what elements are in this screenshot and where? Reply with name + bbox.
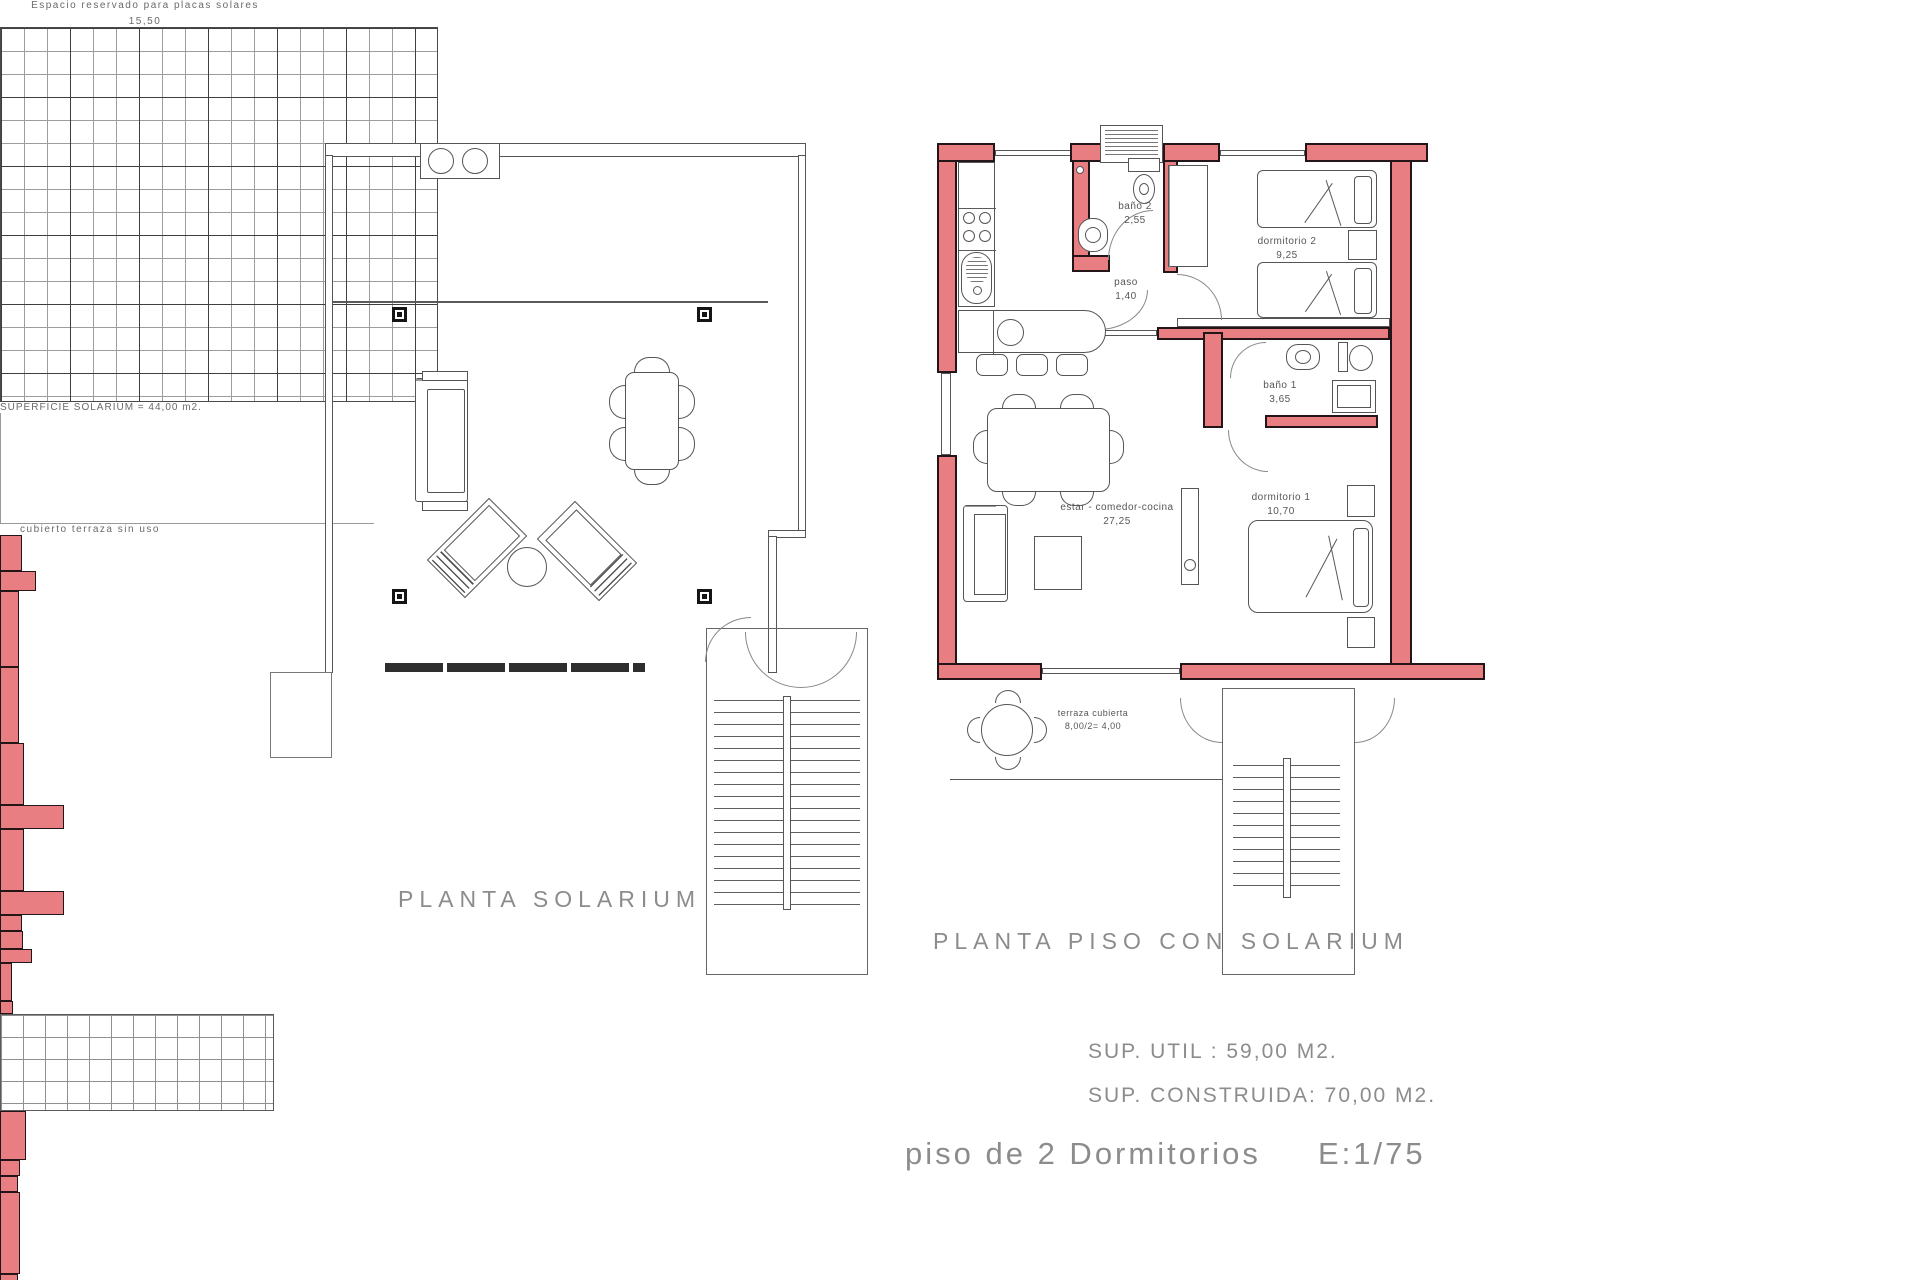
wall-bano1-cap	[0, 963, 12, 1001]
sup-util-text: SUP. UTIL : 59,00 M2.	[1088, 1040, 1338, 1064]
window-top-2	[1220, 150, 1305, 156]
sheet-fold	[1306, 539, 1338, 598]
red-wall	[0, 1274, 18, 1280]
plan-solarium-title: PLANTA SOLARIUM	[398, 886, 701, 913]
shower-tray	[1332, 380, 1376, 413]
window-left	[941, 373, 951, 455]
surface-label: SUPERFICIE SOLARIUM = 44,00 m2.	[0, 402, 200, 413]
red-wall	[0, 829, 24, 891]
toilet-cistern	[1128, 158, 1160, 172]
lounge-side-table	[507, 547, 547, 587]
stair-tower-right	[0, 1160, 1920, 1280]
toilet-cistern	[1338, 342, 1348, 372]
solarium-wall-top	[325, 143, 806, 157]
solarium-wall-left	[325, 155, 333, 673]
toilet-bowl	[1349, 345, 1373, 371]
terrace-left-line	[0, 413, 1, 523]
wall-dorm2-stub	[0, 949, 32, 963]
terrace-tile-grid	[0, 1014, 274, 1111]
solar-note-line1: Espacio reservado para placas solares	[0, 0, 290, 11]
terrace-step	[270, 672, 332, 758]
kitchen-peninsula	[958, 310, 1106, 353]
red-wall	[0, 591, 19, 667]
counter-line	[959, 208, 996, 209]
solarium-table	[625, 372, 679, 470]
chair	[609, 427, 625, 461]
sink-bowl	[1085, 227, 1101, 243]
chair	[609, 385, 625, 419]
red-wall	[0, 1111, 26, 1160]
solar-circle-1	[428, 148, 454, 174]
chair	[679, 385, 695, 419]
nightstand	[1347, 485, 1375, 517]
bar-stool	[1056, 354, 1088, 376]
stove-burner	[979, 212, 991, 224]
peninsula-hob	[997, 319, 1024, 346]
door-arc	[705, 617, 751, 662]
solarium-wall-right-outer	[798, 155, 806, 537]
room-name: baño 1	[1245, 379, 1315, 393]
room-name: baño 2	[1100, 200, 1170, 214]
floorplan-canvas: Espacio reservado para placas solares 15…	[0, 0, 1920, 1280]
solar-note: Espacio reservado para placas solares 15…	[0, 0, 290, 27]
column-red	[0, 1001, 13, 1014]
peninsula-line	[993, 311, 994, 354]
room-area: 8,00/2= 4,00	[1043, 720, 1143, 733]
sofa-armrest	[422, 371, 468, 381]
room-area: 1,40	[1096, 290, 1156, 304]
wall-right	[1390, 160, 1412, 667]
room-name: terraza cubierta	[1043, 707, 1143, 720]
nightstand	[1347, 617, 1375, 648]
wall-left-lower	[937, 455, 957, 665]
sofa-seat	[974, 514, 1006, 595]
sheet-fold	[1326, 180, 1342, 226]
wall-bano2-bottom	[1072, 255, 1110, 272]
room-area: 27,25	[1037, 515, 1197, 529]
solar-note-line2: 15,50	[0, 16, 290, 27]
solarium-sofa	[415, 378, 468, 502]
stove-burner	[963, 212, 975, 224]
room-area: 3,65	[1245, 393, 1315, 407]
wall-mid-horizontal	[1157, 327, 1390, 340]
red-wall	[0, 535, 22, 571]
room-label-bano1: baño 1 3,65	[1245, 379, 1315, 407]
wall-bano1-south	[1265, 415, 1378, 428]
sofa-cushion-line	[964, 506, 996, 507]
wall-left-upper	[937, 160, 957, 373]
red-wall	[0, 743, 24, 805]
red-wall	[0, 1160, 20, 1176]
red-wall	[0, 805, 64, 829]
bano1-sink	[1286, 344, 1320, 370]
coffee-table	[1034, 536, 1082, 590]
sink-bowl	[1295, 350, 1311, 364]
bed-single-2	[1257, 262, 1377, 318]
sup-construida-text: SUP. CONSTRUIDA: 70,00 M2.	[1088, 1084, 1436, 1108]
bar-stool	[1016, 354, 1048, 376]
chair	[634, 357, 670, 372]
niche-hatch	[1105, 130, 1158, 158]
red-wall	[0, 571, 36, 591]
wall-tooth	[0, 915, 22, 931]
terrace-slider	[1042, 668, 1180, 674]
red-wall	[0, 667, 19, 743]
door-stop	[1076, 166, 1084, 174]
stove-burner	[963, 230, 975, 242]
room-label-dorm2: dormitorio 2 9,25	[1237, 235, 1337, 263]
column-marker	[392, 589, 407, 604]
kitchen-sink	[961, 252, 992, 304]
terrace-note: cubierto terraza sin uso	[0, 524, 180, 535]
sheet-fold	[1328, 536, 1343, 601]
red-wall	[0, 891, 64, 915]
room-area: 2,55	[1100, 214, 1170, 228]
room-name: estar - comedor-cocina	[1037, 501, 1197, 515]
room-name: dormitorio 1	[1231, 491, 1331, 505]
chair	[679, 427, 695, 461]
sofa-armrest	[422, 501, 468, 511]
red-wall	[0, 1192, 20, 1274]
sink-drain	[973, 286, 982, 295]
solarium-tile-grid	[0, 27, 438, 402]
bed-single-1	[1257, 170, 1377, 228]
wall-tooth	[0, 931, 23, 949]
room-label-terraza: terraza cubierta 8,00/2= 4,00	[1043, 707, 1143, 732]
wall-mid-vertical	[1203, 332, 1223, 428]
room-name: paso	[1096, 276, 1156, 290]
room-label-dorm1: dormitorio 1 10,70	[1231, 491, 1331, 519]
pillow	[1353, 528, 1369, 607]
pillow	[1354, 268, 1372, 314]
bed-double	[1248, 520, 1373, 613]
solar-circle-2	[462, 148, 488, 174]
sink-drainer	[966, 257, 988, 283]
room-label-paso: paso 1,40	[1096, 276, 1156, 304]
stair-stringer	[1283, 758, 1291, 898]
stair-stringer	[783, 696, 791, 910]
dining-table	[987, 408, 1110, 492]
room-area: 9,25	[1237, 249, 1337, 263]
red-wall	[0, 1176, 18, 1192]
sofa-living	[963, 505, 1008, 602]
shower-inner	[1337, 385, 1371, 408]
tv-knob	[1184, 559, 1196, 571]
sheet-fold	[1326, 271, 1341, 315]
stove-burner	[979, 230, 991, 242]
chair	[634, 470, 670, 485]
column-marker	[697, 589, 712, 604]
solarium-sill-hatch	[385, 663, 645, 672]
room-label-estar: estar - comedor-cocina 27,25	[1037, 501, 1197, 529]
terrace-table	[981, 704, 1033, 756]
pillow	[1354, 176, 1372, 224]
bar-stool	[976, 354, 1008, 376]
footer-scale: E:1/75	[1318, 1136, 1426, 1172]
column-marker	[392, 307, 407, 322]
room-name: dormitorio 2	[1237, 235, 1337, 249]
wall-bottom-b	[1180, 663, 1485, 680]
footer-label: piso de 2 Dormitorios	[905, 1136, 1261, 1172]
wardrobe-dorm2	[1168, 165, 1208, 267]
room-label-bano2: baño 2 2,55	[1100, 200, 1170, 228]
window-top-1	[995, 150, 1072, 156]
toilet-inner	[1139, 183, 1149, 195]
terrace-edge	[950, 779, 1222, 780]
solarium-grid-topline	[332, 301, 768, 303]
sofa-seat	[427, 389, 465, 493]
counter-line	[959, 250, 996, 251]
room-area: 10,70	[1231, 505, 1331, 519]
plan-piso: baño 2 2,55 paso 1,40 dormitorio 2 9,25 …	[0, 915, 1920, 1160]
wall-bottom-a	[937, 663, 1042, 680]
column-marker	[697, 307, 712, 322]
nightstand	[1348, 230, 1377, 260]
